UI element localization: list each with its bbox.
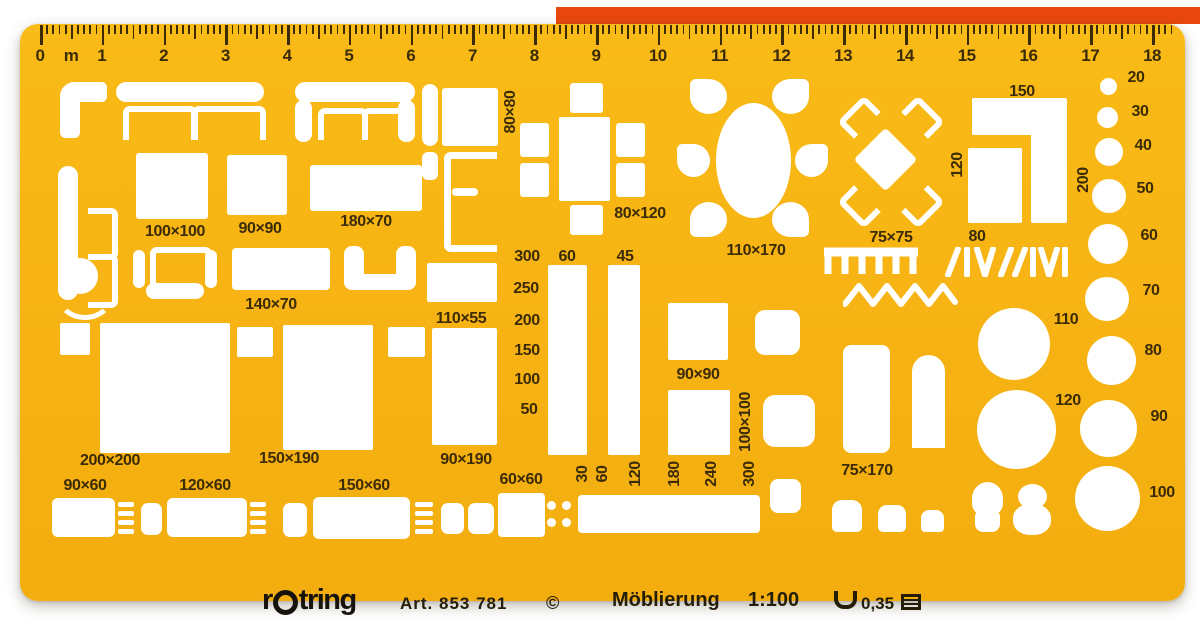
ruler-tick (510, 25, 512, 34)
dimension-label: 75×170 (841, 462, 892, 480)
dimension-label: 300 (741, 461, 759, 487)
nightstand-cutout (60, 323, 90, 355)
dimension-label: 70 (1143, 282, 1160, 300)
chair-cutout (616, 123, 645, 157)
ruler-number: 15 (958, 46, 976, 66)
dimension-label: 90×190 (440, 451, 491, 469)
ruler-tick (849, 25, 851, 34)
circle-90-cutout (1080, 400, 1137, 457)
ruler-number: 3 (221, 46, 230, 66)
ruler-tick (781, 25, 784, 45)
ruler-tick (256, 25, 258, 39)
dimension-label: 80 (969, 228, 986, 246)
ruler-tick (1121, 25, 1123, 39)
ruler-tick (1041, 25, 1043, 34)
ruler-tick (157, 25, 159, 34)
ruler-tick (639, 25, 641, 34)
counter-side-cutout (1031, 120, 1067, 223)
ruler-tick (596, 25, 599, 45)
desk-150x60-cutout (313, 497, 410, 539)
ruler-tick (763, 25, 765, 34)
ruler-tick (244, 25, 246, 34)
ruler-tick (843, 25, 846, 45)
ruler-tick (1047, 25, 1049, 34)
ruler-number: 11 (711, 46, 728, 66)
ruler-tick (732, 25, 734, 34)
dimension-label: 45 (617, 248, 634, 266)
ruler-tick (522, 25, 524, 34)
pen-width-value: 0,35 (861, 594, 894, 614)
dimension-label: 30 (574, 466, 592, 483)
bed-150x190-cutout (283, 325, 373, 450)
dimension-label: 200 (514, 312, 540, 330)
ruler-tick (553, 25, 555, 34)
ruler-tick (398, 25, 400, 34)
rect-180x70-cutout (310, 165, 422, 211)
dimension-label: 90×90 (239, 220, 282, 238)
dimension-label: 90×60 (64, 477, 107, 495)
ruler-tick (528, 25, 530, 34)
tally-marks-symbol-cutout (945, 247, 1071, 282)
ruler-tick (133, 25, 135, 39)
ruler-tick (1028, 25, 1031, 45)
square-80x80-cutout (442, 88, 498, 146)
ruler-tick (1115, 25, 1117, 34)
ruler-tick (355, 25, 357, 34)
ruler-tick (1022, 25, 1024, 34)
ruler-tick (689, 25, 691, 39)
ruler-number: 5 (344, 46, 353, 66)
ruler-tick (485, 25, 487, 34)
ruler-tick (423, 25, 425, 34)
cabinet-cutout (770, 479, 801, 513)
ruler-tick (1090, 25, 1093, 45)
square-90x90-cutout (668, 303, 728, 360)
dimension-label: 60×60 (500, 471, 543, 489)
circle-30-cutout (1097, 107, 1118, 128)
ruler-tick (590, 25, 592, 34)
chair-petal-cutout (772, 79, 809, 114)
dimension-label: 180 (666, 461, 684, 487)
ruler-tick (170, 25, 172, 34)
table-80x120-cutout (559, 117, 610, 201)
red-edge-strip (556, 7, 1200, 24)
ruler-tick (417, 25, 419, 34)
ruler-tick (769, 25, 771, 34)
ruler-tick (1053, 25, 1055, 34)
chair-petal-cutout (690, 202, 727, 237)
dot-cutout (547, 518, 556, 527)
ruler-tick (664, 25, 666, 34)
bar-45-cutout (608, 265, 640, 455)
bar-60-cutout (548, 265, 587, 455)
sofa-cushion-cutout (123, 106, 197, 140)
toilet-bowl-cutout (1013, 504, 1051, 535)
article-number: Art. 853 781 (400, 594, 507, 614)
ruler-tick (571, 25, 573, 34)
dot-cutout (562, 518, 571, 527)
chair-petal-cutout (677, 144, 710, 177)
sofa-cushion-cutout (318, 108, 368, 140)
ruler-tick (65, 25, 67, 34)
ruler-tick (262, 25, 264, 34)
sofa-cushion-cutout (362, 108, 412, 140)
sofa-back-cutout (116, 82, 264, 102)
dimension-label: 140×70 (245, 296, 296, 314)
ruler-tick (757, 25, 759, 34)
dimension-label: 200 (1075, 167, 1093, 193)
ruler-tick (942, 25, 944, 34)
dimension-label: 110×55 (436, 310, 487, 328)
armchair-seat-cutout (150, 247, 212, 285)
ruler-tick (1078, 25, 1080, 34)
ruler-tick (547, 25, 549, 34)
dot-cutout (562, 501, 571, 510)
ruler-tick (831, 25, 833, 34)
ruler-tick (491, 25, 493, 34)
chair-petal-cutout (772, 202, 809, 237)
ruler-tick (516, 25, 518, 34)
ruler-tick (1158, 25, 1160, 34)
ruler-tick (967, 25, 970, 45)
ruler-tick (750, 25, 752, 39)
ruler-tick (608, 25, 610, 34)
dot-cutout (547, 501, 556, 510)
sink-cutout (832, 500, 862, 532)
ruler-number: 4 (283, 46, 292, 66)
dimension-label: 100 (1149, 484, 1175, 502)
square-90x90-cutout (227, 155, 287, 215)
ruler-tick (188, 25, 190, 34)
ruler-tick (1127, 25, 1129, 34)
ruler-tick (238, 25, 240, 34)
ruler-tick (1016, 25, 1018, 34)
ruler-tick (1134, 25, 1136, 34)
dimension-label: 80×120 (614, 205, 665, 223)
hatch-bar (118, 529, 134, 534)
ruler-tick (293, 25, 295, 34)
hatch-bar (118, 520, 134, 525)
din-paper-icon (901, 594, 921, 610)
dimension-label: 120 (627, 461, 645, 487)
ruler-tick (794, 25, 796, 34)
stool-arc-cutout (56, 270, 114, 320)
hatch-bar (118, 502, 134, 507)
ruler-tick (670, 25, 672, 34)
ruler-tick (874, 25, 876, 39)
ruler-tick (275, 25, 277, 34)
ruler-tick (713, 25, 715, 34)
circle-60-cutout (1088, 224, 1128, 264)
circle-40-cutout (1095, 138, 1123, 166)
ruler-tick (472, 25, 475, 45)
ruler-tick (126, 25, 128, 34)
ruler-tick (880, 25, 882, 34)
dimension-label: 110 (1054, 311, 1079, 329)
ruler-tick (330, 25, 332, 34)
sofa-back-cutout (295, 82, 415, 102)
ruler-tick (707, 25, 709, 34)
ruler-tick (318, 25, 320, 39)
dimension-label: 20 (1128, 69, 1145, 87)
hatch-bar (250, 520, 266, 525)
ruler-tick (1084, 25, 1086, 34)
circle-70-cutout (1085, 277, 1129, 321)
ruler-tick (1066, 25, 1068, 34)
ruler-tick (479, 25, 481, 34)
dimension-label: 90 (1151, 408, 1168, 426)
ruler-tick (1035, 25, 1037, 34)
ruler-tick (917, 25, 919, 34)
circle-20-cutout (1100, 78, 1117, 95)
ruler-tick (207, 25, 209, 34)
ruler-tick (991, 25, 993, 34)
ruler-tick (213, 25, 215, 34)
ruler-tick (744, 25, 746, 34)
dimension-label: 100×100 (145, 223, 205, 241)
dimension-label: 60 (594, 466, 612, 483)
hatch-stripes-cutout (118, 502, 134, 538)
template-photo: 0123456789101112131415161718m 100×10090×… (0, 0, 1200, 630)
corner-sofa-cutout (60, 82, 80, 138)
ruler-tick (1103, 25, 1105, 34)
dimension-label: 60 (559, 248, 576, 266)
dimension-label: 80 (1145, 342, 1162, 360)
chair-petal-cutout (795, 144, 828, 177)
ruler-tick (1109, 25, 1111, 34)
ruler-tick (312, 25, 314, 34)
table-110x55-cutout (427, 263, 497, 302)
bed-200x200-cutout (100, 323, 230, 453)
ruler-tick (337, 25, 339, 34)
ruler-tick (905, 25, 908, 45)
ruler-tick (985, 25, 987, 34)
dimension-label: 120 (949, 152, 967, 178)
ruler-tick (40, 25, 43, 45)
counter-square-cutout (968, 148, 1022, 223)
dimension-label: 150 (514, 342, 540, 360)
dimension-label: 150 (1009, 83, 1035, 101)
ruler-tick (565, 25, 567, 39)
dimension-label: 180×70 (340, 213, 391, 231)
chair-square-cutout (283, 503, 307, 537)
logo-text-r: r (262, 584, 272, 617)
chair-cutout (520, 163, 549, 197)
ruler-tick (930, 25, 932, 34)
ruler-tick (497, 25, 499, 34)
ruler-tick (194, 25, 196, 39)
ruler-tick (627, 25, 629, 39)
ruler-tick (868, 25, 870, 34)
diamond-table-cutout (854, 128, 918, 192)
ruler-tick (1140, 25, 1142, 34)
sink-cutout (921, 510, 944, 532)
bar-cutout (422, 152, 438, 180)
ruler-tick (1164, 25, 1166, 34)
ruler-tick (615, 25, 617, 34)
ruler-tick (911, 25, 913, 34)
sink-cutout (878, 505, 906, 532)
chair-diag-cutout (837, 185, 881, 229)
dimension-label: 300 (514, 248, 540, 266)
ruler-tick (108, 25, 110, 34)
oval-table-cutout (716, 103, 791, 218)
template-scale: 1:100 (748, 589, 799, 612)
ruler-tick (812, 25, 814, 39)
armchair-arm-cutout (133, 250, 145, 288)
ruler-tick (621, 25, 623, 34)
ruler-tick (652, 25, 654, 34)
ruler-number: 1 (97, 46, 106, 66)
dimension-label: 240 (703, 461, 721, 487)
bench-300-cutout (578, 495, 760, 533)
hatch-stripes-cutout (415, 502, 433, 538)
circle-100-cutout (1075, 466, 1140, 531)
ruler-tick (633, 25, 635, 34)
square-100x100-cutout (136, 153, 208, 219)
ruler-tick (1004, 25, 1006, 34)
ruler-tick (448, 25, 450, 34)
ruler-tick (349, 25, 352, 45)
circle-120-cutout (977, 390, 1056, 469)
ruler-tick (825, 25, 827, 34)
desk-90x60-cutout (52, 498, 115, 537)
ruler-tick (800, 25, 802, 34)
ruler-number: 8 (530, 46, 539, 66)
sofa-cushion-cutout (192, 106, 266, 140)
chair-square-cutout (441, 503, 464, 534)
ruler-tick (837, 25, 839, 34)
ruler-tick (695, 25, 697, 34)
ruler-tick (460, 25, 462, 34)
rotring-ring-icon (273, 590, 298, 615)
ruler-number: 6 (406, 46, 415, 66)
ruler-tick (139, 25, 141, 34)
dimension-label: 40 (1135, 137, 1152, 155)
ruler-tick (299, 25, 301, 34)
hatch-bar (415, 502, 433, 507)
ruler-tick (806, 25, 808, 34)
coat-rack-symbol-cutout (821, 247, 921, 282)
ruler-tick (1146, 25, 1148, 34)
ruler-tick (77, 25, 79, 34)
hatch-bar (415, 511, 433, 516)
nightstand-cutout (388, 327, 425, 357)
dimension-label: 120×60 (179, 477, 230, 495)
ruler-tick (788, 25, 790, 34)
chair-diag-cutout (901, 95, 945, 139)
copyright-symbol: © (546, 593, 559, 614)
toilet-bowl-cutout (972, 482, 1003, 515)
ruler-tick (367, 25, 369, 34)
dimension-label: 90×90 (677, 366, 720, 384)
ruler-tick (225, 25, 228, 45)
circle-50-cutout (1092, 179, 1126, 213)
desk-120x60-cutout (167, 498, 247, 537)
ruler-tick (306, 25, 308, 34)
ruler-tick (775, 25, 777, 34)
chair-cutout (520, 123, 549, 157)
circle-110-cutout (978, 308, 1050, 380)
hatch-bar (250, 529, 266, 534)
circle-80-cutout (1087, 336, 1136, 385)
ruler-tick (961, 25, 963, 34)
bench-outline-cutout (444, 152, 497, 252)
ruler-tick (429, 25, 431, 34)
ruler-tick (726, 25, 728, 34)
ruler-tick (701, 25, 703, 34)
dimension-label: 150×190 (259, 450, 319, 468)
ruler-tick (534, 25, 537, 45)
ruler-number: 10 (649, 46, 667, 66)
ruler-tick (46, 25, 48, 34)
armchair-arm-cutout (205, 250, 217, 288)
dimension-label: 120 (1055, 392, 1081, 410)
ruler-tick (954, 25, 956, 34)
ruler-tick (503, 25, 505, 39)
ruler-number: 7 (468, 46, 477, 66)
ruler-tick (602, 25, 604, 34)
square-60x60-cutout (498, 493, 545, 537)
template-title: Möblierung (612, 589, 720, 612)
ruler-tick (948, 25, 950, 34)
hatch-bar (415, 529, 433, 534)
ruler-tick (577, 25, 579, 34)
ruler-tick (250, 25, 252, 34)
chair-diag-cutout (837, 95, 881, 139)
ruler-tick (979, 25, 981, 34)
logo-text-tring: tring (299, 584, 356, 617)
ruler-tick (893, 25, 895, 34)
ruler-tick (738, 25, 740, 34)
armchair-back-cutout (146, 283, 204, 299)
ruler-number: 14 (896, 46, 914, 66)
ruler-tick (182, 25, 184, 34)
ruler-tick (287, 25, 290, 45)
ruler-tick (936, 25, 938, 39)
ruler-tick (120, 25, 122, 34)
dimension-label: 50 (1137, 180, 1154, 198)
bar-cutout (422, 84, 438, 146)
ruler-number: 12 (772, 46, 790, 66)
ruler-tick (1072, 25, 1074, 34)
ruler-tick (392, 25, 394, 34)
chair-square-cutout (468, 503, 494, 534)
ruler-tick (973, 25, 975, 34)
ruler-tick (96, 25, 98, 34)
ruler-tick (454, 25, 456, 34)
ruler-tick (435, 25, 437, 34)
dimension-label: 250 (513, 280, 539, 298)
ruler-tick (683, 25, 685, 34)
ruler-tick (269, 25, 271, 34)
ruler-number: 18 (1143, 46, 1161, 66)
ruler-tick (584, 25, 586, 34)
ruler-tick (343, 25, 345, 34)
ruler-tick (52, 25, 54, 34)
ruler-tick (219, 25, 221, 34)
dimension-label: 60 (1141, 227, 1158, 245)
chair-cutout (616, 163, 645, 197)
pen-u-icon (834, 591, 857, 609)
ruler-tick (201, 25, 203, 34)
ruler-tick (281, 25, 283, 34)
ruler-number: 9 (592, 46, 601, 66)
ruler-tick (1010, 25, 1012, 34)
ruler-tick (442, 25, 444, 39)
zigzag-symbol-cutout (843, 280, 958, 313)
ruler-tick (89, 25, 91, 34)
